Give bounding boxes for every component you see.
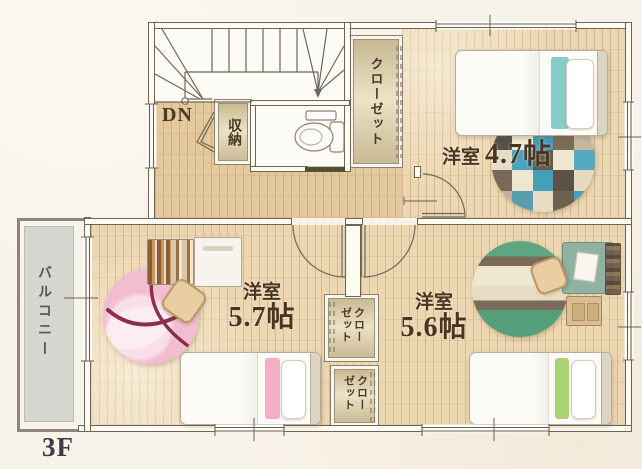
wall-segment: [84, 218, 292, 225]
bed-pillow: [281, 360, 306, 419]
wall-segment: [345, 218, 363, 225]
closet-room47-label: クローゼット: [369, 57, 384, 147]
wall-segment: [250, 100, 256, 172]
closet-room57: クローゼット: [325, 295, 378, 361]
cabinet-room56: [566, 296, 602, 326]
bookshelf-room57: [147, 239, 194, 285]
bed-pillow: [571, 360, 596, 419]
bed-room57: [180, 352, 321, 425]
closet-room47: クローゼット: [350, 36, 402, 167]
bed-headboard: [310, 353, 320, 424]
wall-segment: [148, 22, 155, 225]
wall-segment: [417, 218, 632, 225]
bed-fold: [470, 353, 549, 424]
wall-segment: [625, 22, 632, 432]
room-56-label: 洋室 5.6帖: [386, 293, 482, 342]
wall-segment: [344, 22, 351, 172]
room-57-label: 洋室 5.7帖: [214, 283, 310, 332]
bed-pillow: [566, 59, 594, 129]
desk-room57: [194, 237, 242, 287]
toilet-sliding-door: [305, 167, 345, 172]
storage: 収納: [215, 100, 251, 164]
wall-segment: [84, 217, 91, 432]
room-56-size: 5.6帖: [400, 313, 467, 342]
desk-paper: [573, 252, 599, 283]
bed-room56: [469, 352, 612, 425]
wall-segment: [148, 22, 632, 29]
closet-room56: クローゼット: [331, 366, 378, 426]
room-47-label: 洋室 4.7帖: [442, 132, 552, 172]
storage-label: 収納: [225, 118, 241, 146]
wall-segment: [250, 100, 350, 106]
room-56-type: 洋室: [415, 293, 453, 313]
toilet-room: [256, 106, 344, 166]
floor-number-label: 3F: [42, 432, 74, 463]
balcony-rail-left: [17, 218, 20, 432]
wall-segment: [250, 166, 308, 172]
bed-fold: [456, 51, 540, 135]
bed-headboard: [597, 51, 607, 135]
wall-segment: [78, 425, 632, 432]
balcony-label: バルコニー: [33, 265, 53, 405]
closet-room57-label: クローゼット: [339, 307, 365, 349]
room-57-size: 5.7帖: [228, 303, 295, 332]
bed-headboard: [601, 353, 611, 424]
floor-plan: バルコニー クローゼット 収納 クローゼット クローゼット: [0, 0, 642, 469]
balcony-rail-top: [17, 218, 84, 221]
desk-item: [203, 246, 233, 251]
room-47-type: 洋室: [442, 142, 480, 169]
bed-room47: [455, 50, 608, 136]
closet-room56-label: クローゼット: [342, 375, 368, 417]
staircase-area: [155, 29, 344, 102]
wall-segment: [414, 166, 421, 178]
bed-fold: [181, 353, 258, 424]
wall-segment: [345, 225, 361, 297]
bed-blanket-pink: [265, 358, 280, 419]
room-57-type: 洋室: [243, 283, 281, 303]
bed-blanket-green: [555, 358, 569, 419]
shelf-room56: [605, 243, 621, 295]
room-47-size: 4.7帖: [485, 132, 552, 172]
stairs-dn-label: DN: [162, 104, 193, 127]
